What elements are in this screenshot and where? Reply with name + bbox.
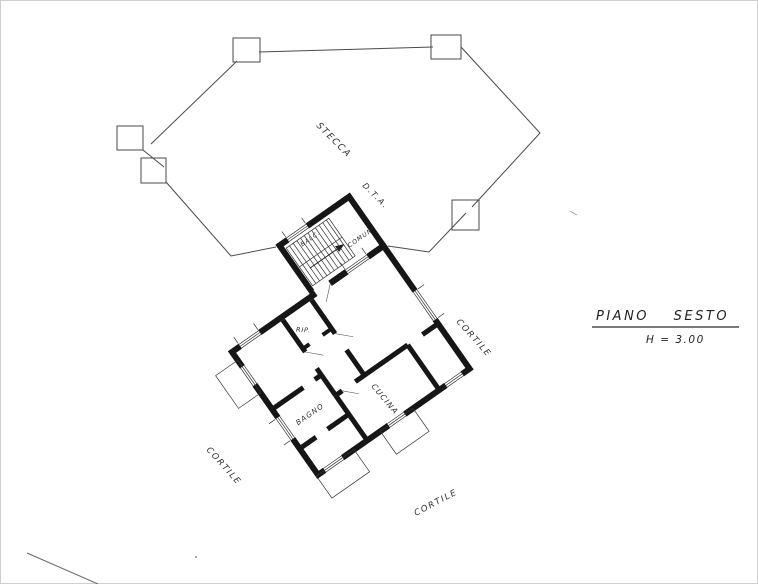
floor-height-note: H = 3.00: [646, 334, 705, 346]
outline-top-edge: [259, 47, 433, 52]
title-block: PIANO SESTO H = 3.00: [592, 309, 739, 346]
scan-speck: [195, 556, 197, 558]
scan-stray-line: [27, 553, 98, 584]
bathroom-label: BAGNO: [294, 401, 326, 427]
door-leaf: [342, 384, 359, 401]
outline-annotation-label: D.T.A.: [361, 181, 391, 211]
drawing-title: PIANO SESTO: [596, 309, 729, 324]
floor-plan-drawing: STECCA D.T.A.: [0, 0, 758, 584]
outline-pilaster-left2: [141, 158, 166, 183]
outline-pilaster-left1: [117, 126, 143, 150]
outline-right-edge: [461, 47, 540, 207]
storage-room-label: RIP.: [296, 326, 311, 335]
outline-pilaster-topleft: [233, 38, 260, 62]
window: [444, 371, 464, 388]
courtyard-label-bottom: CORTILE: [413, 487, 460, 518]
outline-pilaster-topright: [431, 35, 461, 59]
common-stair-label: COMUN.: [347, 226, 377, 250]
outline-left-edge: [151, 61, 237, 144]
kitchen-label: CUCINA: [369, 382, 400, 416]
partition-walls: [234, 248, 470, 475]
door-leaf: [335, 326, 353, 344]
scan-speck: [570, 211, 577, 215]
outline-lower-right-edge: [388, 213, 466, 252]
courtyard-label-left: CORTILE: [204, 445, 243, 487]
window: [412, 285, 444, 322]
terrace-label: STECCA: [314, 121, 353, 160]
outline-lower-left-edge: [166, 182, 276, 256]
